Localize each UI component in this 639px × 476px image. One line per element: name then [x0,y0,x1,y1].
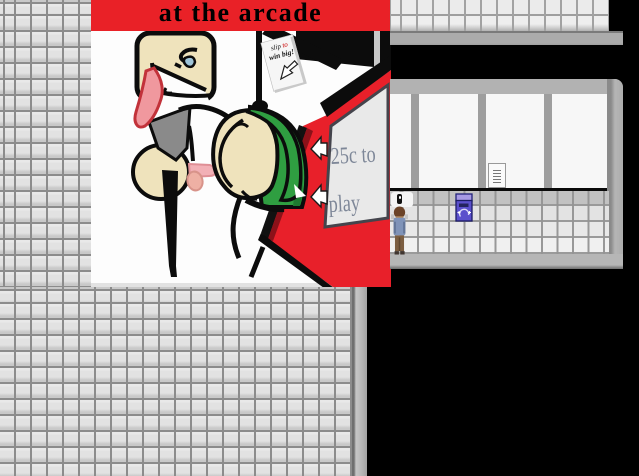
svg-text:play: play [328,189,361,218]
svg-text:25c to: 25c to [330,140,376,169]
